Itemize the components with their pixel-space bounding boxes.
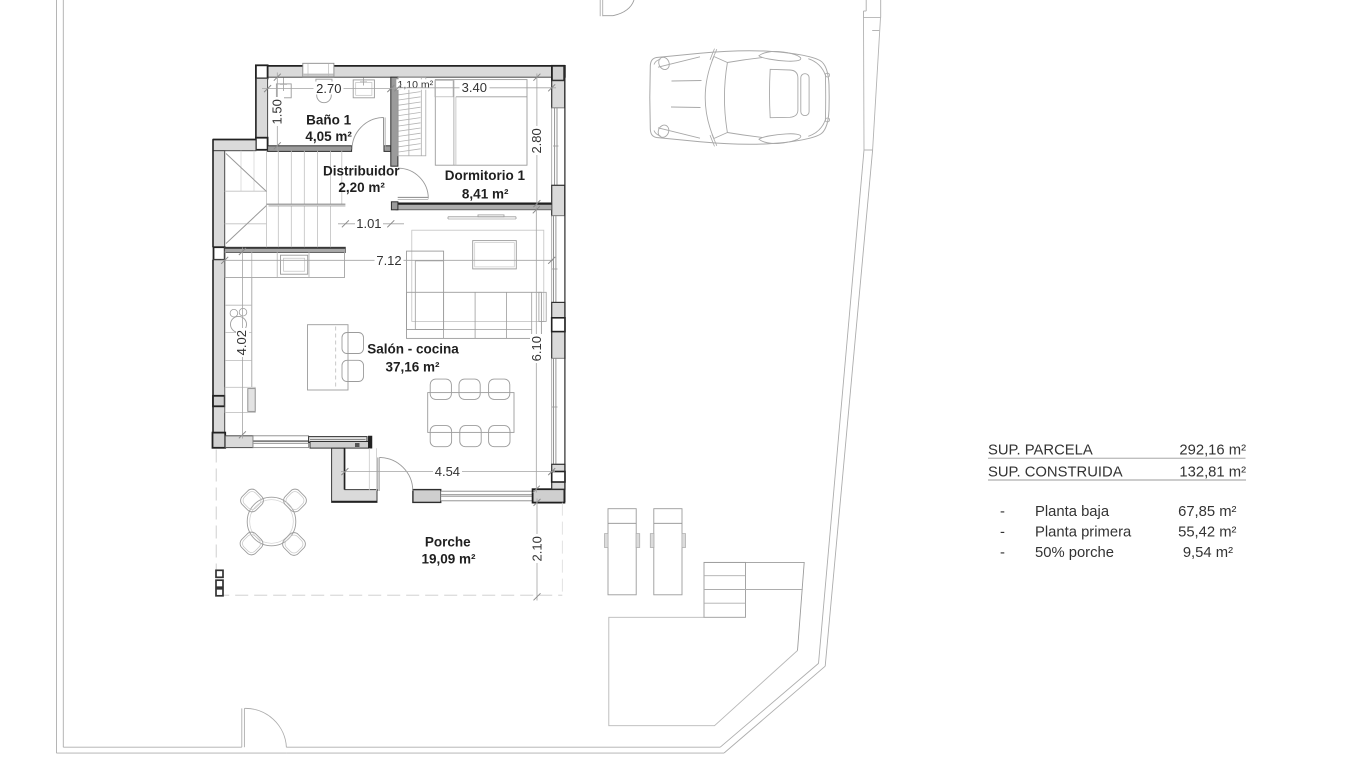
svg-text:4.54: 4.54: [435, 464, 460, 479]
svg-text:2.80: 2.80: [529, 128, 544, 153]
svg-text:1.01: 1.01: [356, 216, 381, 231]
svg-text:Dormitorio 1: Dormitorio 1: [445, 168, 526, 183]
svg-text:-: -: [1000, 525, 1005, 541]
svg-text:Distribuidor: Distribuidor: [323, 163, 400, 178]
svg-text:Planta primera: Planta primera: [1035, 525, 1132, 541]
svg-text:3.40: 3.40: [462, 80, 487, 95]
svg-text:19,09 m²: 19,09 m²: [421, 552, 476, 567]
svg-text:8,41 m²: 8,41 m²: [462, 187, 509, 202]
svg-text:SUP. CONSTRUIDA: SUP. CONSTRUIDA: [988, 464, 1123, 480]
svg-text:7.12: 7.12: [376, 253, 401, 268]
svg-text:292,16 m²: 292,16 m²: [1179, 443, 1246, 459]
svg-text:4,05 m²: 4,05 m²: [305, 129, 352, 144]
svg-text:4.02: 4.02: [234, 330, 249, 355]
svg-text:2.70: 2.70: [316, 81, 341, 96]
svg-text:SUP. PARCELA: SUP. PARCELA: [988, 443, 1093, 459]
svg-text:Baño 1: Baño 1: [306, 112, 352, 127]
svg-text:-: -: [1000, 504, 1005, 520]
svg-text:37,16 m²: 37,16 m²: [385, 360, 440, 375]
svg-text:1.50: 1.50: [270, 99, 285, 124]
svg-text:6.10: 6.10: [529, 336, 544, 361]
svg-text:Planta baja: Planta baja: [1035, 504, 1110, 520]
svg-text:132,81 m²: 132,81 m²: [1179, 464, 1246, 480]
svg-text:9,54 m²: 9,54 m²: [1183, 545, 1233, 561]
svg-text:Porche: Porche: [425, 535, 471, 550]
svg-text:2.10: 2.10: [530, 536, 545, 561]
svg-text:2,20 m²: 2,20 m²: [338, 180, 385, 195]
svg-text:Salón - cocina: Salón - cocina: [367, 342, 459, 357]
svg-text:55,42 m²: 55,42 m²: [1178, 525, 1236, 541]
svg-text:67,85 m²: 67,85 m²: [1178, 504, 1236, 520]
svg-text:-: -: [1000, 545, 1005, 561]
svg-text:50% porche: 50% porche: [1035, 545, 1114, 561]
svg-text:1,10 m²: 1,10 m²: [398, 79, 434, 91]
